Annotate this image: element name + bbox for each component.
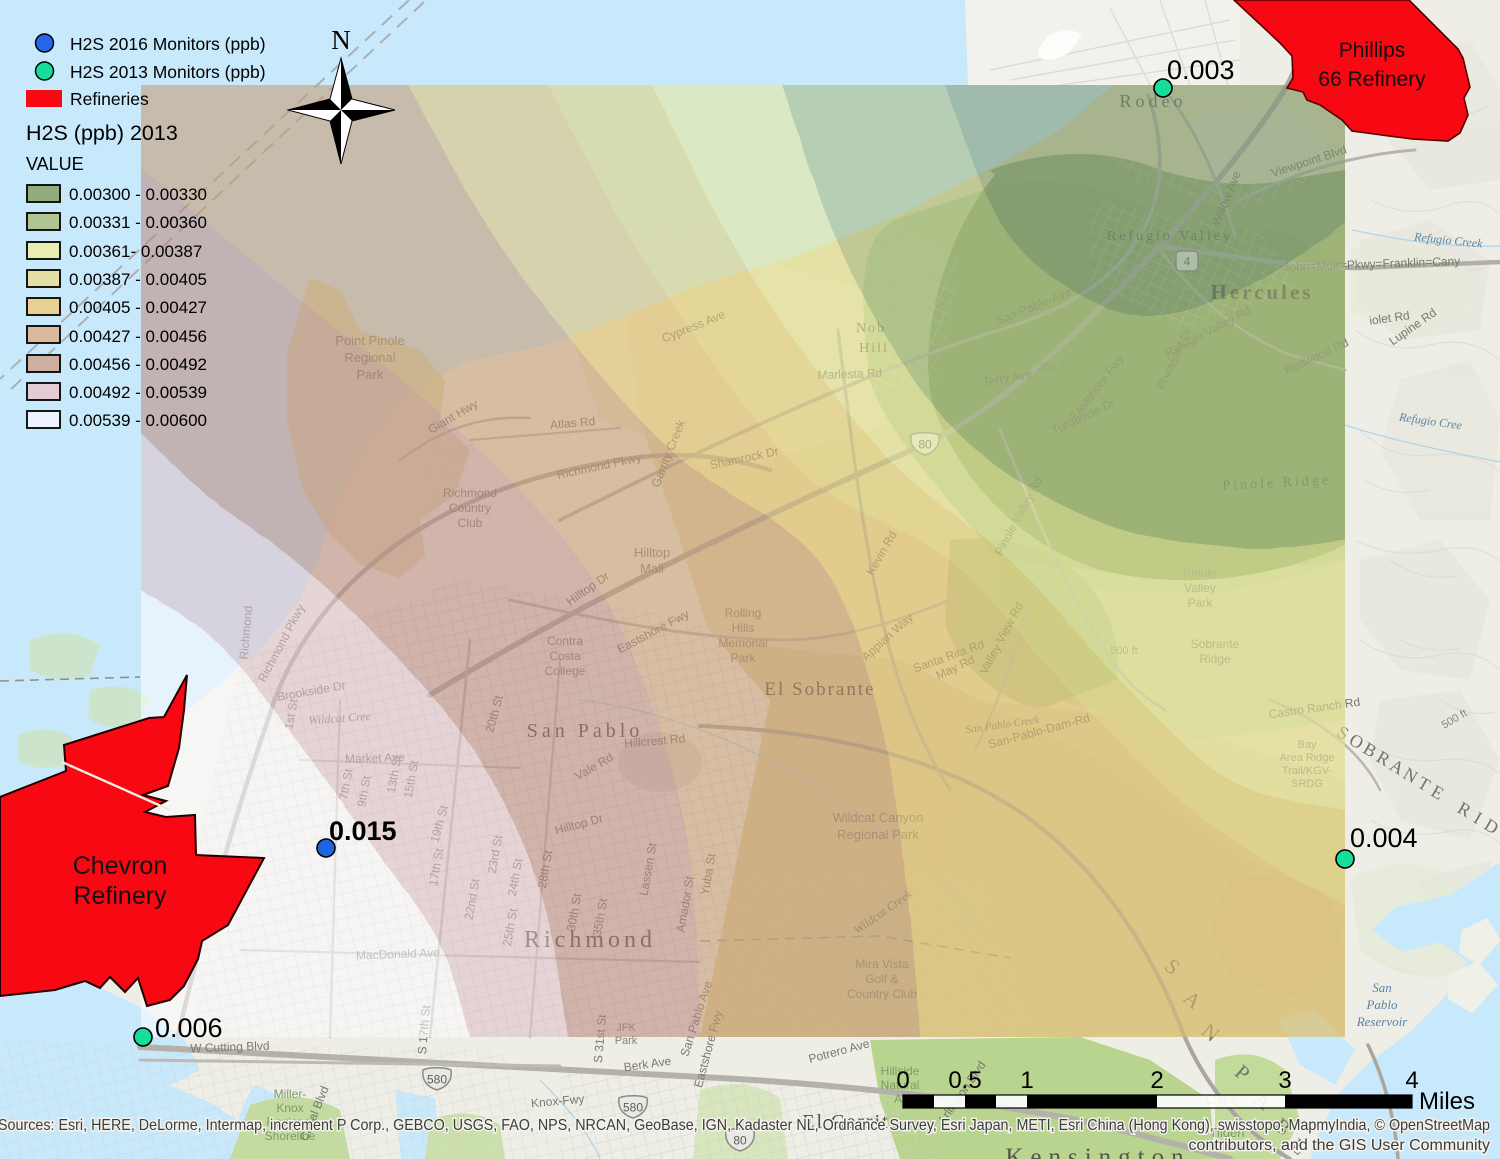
svg-text:Sources: Esri, HERE, DeLorme,: Sources: Esri, HERE, DeLorme, Intermap, … (0, 1117, 1490, 1134)
svg-text:0.006: 0.006 (155, 1013, 223, 1043)
svg-text:0.00456 - 0.00492: 0.00456 - 0.00492 (69, 355, 207, 374)
svg-text:H2S 2013 Monitors (ppb): H2S 2013 Monitors (ppb) (70, 62, 266, 82)
svg-text:Reservoir: Reservoir (1356, 1014, 1408, 1029)
svg-text:0.00361- 0.00387: 0.00361- 0.00387 (69, 242, 202, 261)
svg-text:Refineries: Refineries (70, 89, 149, 109)
svg-text:0.00300 - 0.00330: 0.00300 - 0.00330 (69, 185, 207, 204)
svg-text:3: 3 (1278, 1067, 1291, 1094)
svg-text:0.00427 - 0.00456: 0.00427 - 0.00456 (69, 327, 207, 346)
svg-text:N: N (331, 25, 351, 55)
svg-text:0.015: 0.015 (329, 816, 397, 846)
svg-text:0.00405 - 0.00427: 0.00405 - 0.00427 (69, 298, 207, 317)
svg-text:66 Refinery: 66 Refinery (1318, 68, 1426, 91)
svg-text:0.5: 0.5 (948, 1067, 981, 1094)
svg-text:0.004: 0.004 (1350, 823, 1418, 853)
svg-text:Miller-: Miller- (274, 1087, 307, 1101)
svg-text:2: 2 (1150, 1067, 1163, 1094)
svg-text:0.00331 - 0.00360: 0.00331 - 0.00360 (69, 213, 207, 232)
svg-text:1: 1 (1020, 1067, 1033, 1094)
svg-text:80: 80 (733, 1134, 747, 1148)
svg-text:0.00539 - 0.00600: 0.00539 - 0.00600 (69, 411, 207, 430)
svg-text:San: San (1372, 980, 1392, 995)
svg-text:0.00387 - 0.00405: 0.00387 - 0.00405 (69, 270, 207, 289)
svg-text:H2S (ppb) 2013: H2S (ppb) 2013 (26, 121, 178, 145)
svg-text:Kensington: Kensington (1005, 1144, 1190, 1159)
svg-text:Pablo: Pablo (1365, 997, 1398, 1012)
svg-text:580: 580 (623, 1101, 643, 1115)
svg-text:Refinery: Refinery (73, 882, 167, 910)
svg-text:VALUE: VALUE (26, 154, 84, 174)
svg-text:Miles: Miles (1419, 1088, 1475, 1115)
svg-text:Phillips: Phillips (1339, 39, 1406, 62)
svg-text:Knox: Knox (276, 1101, 303, 1115)
svg-text:H2S 2016 Monitors (ppb): H2S 2016 Monitors (ppb) (70, 34, 266, 54)
svg-text:580: 580 (427, 1073, 447, 1087)
svg-text:4: 4 (1405, 1067, 1418, 1094)
svg-text:0: 0 (896, 1067, 909, 1094)
svg-text:contributors, and the GIS User: contributors, and the GIS User Community (1189, 1137, 1490, 1154)
svg-text:0.003: 0.003 (1167, 55, 1235, 85)
svg-text:0.00492 - 0.00539: 0.00492 - 0.00539 (69, 383, 207, 402)
svg-text:Chevron: Chevron (73, 852, 168, 880)
